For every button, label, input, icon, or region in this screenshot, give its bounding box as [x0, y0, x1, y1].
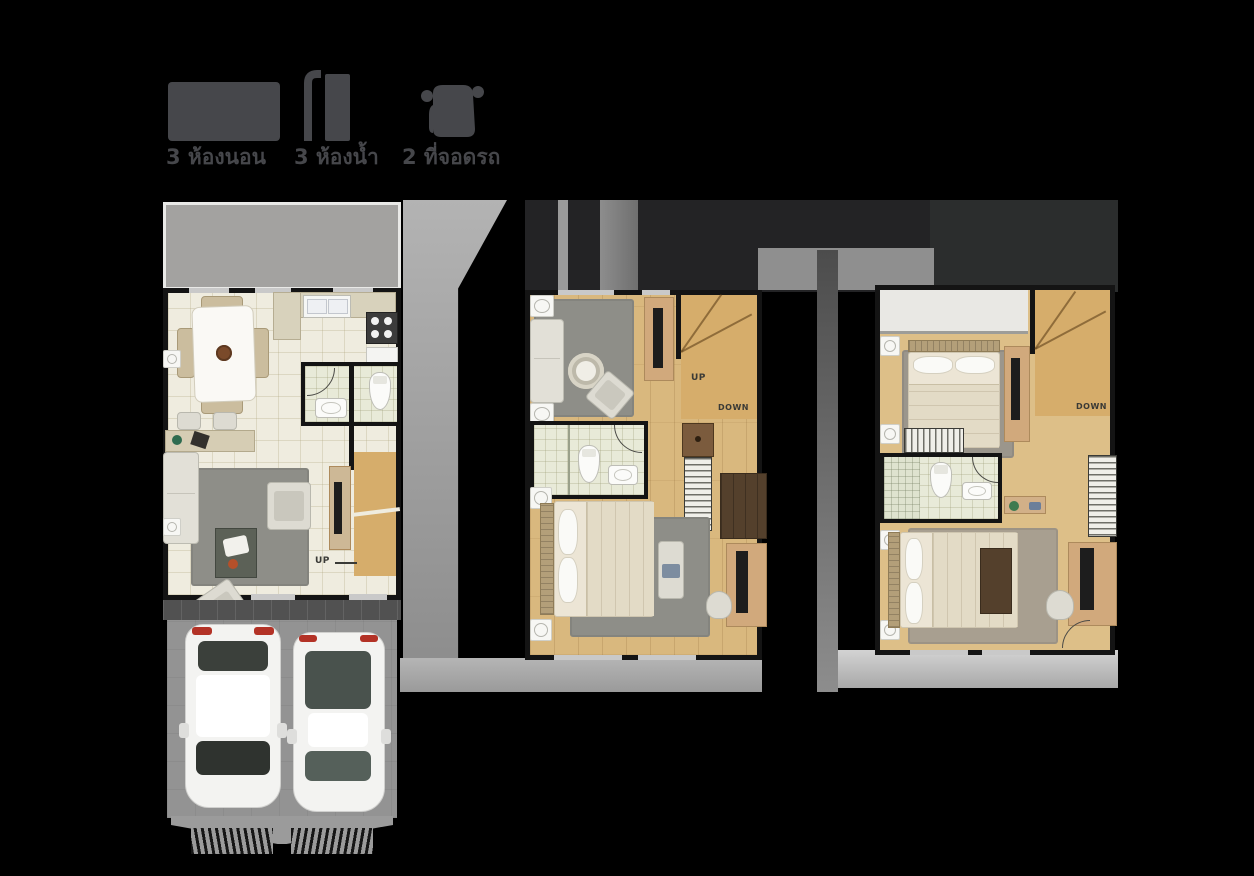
stairs-up-label: UP: [691, 373, 706, 383]
gray-band-mid-top: [758, 248, 934, 290]
shower-area: [884, 457, 920, 519]
pillow: [905, 538, 923, 580]
pillow: [558, 557, 578, 603]
third-floor-plan: DOWN: [875, 285, 1115, 655]
staircase-3-landing: [1035, 350, 1075, 416]
staircase-2-upper: [681, 295, 757, 353]
nightstand-lamp: [530, 619, 552, 641]
kerb-hatching: [291, 828, 373, 854]
side-mirror: [381, 729, 391, 744]
car-2: [293, 632, 385, 812]
pillow: [913, 356, 953, 374]
hall-cabinet: [682, 423, 714, 457]
windshield: [305, 751, 371, 781]
desk-chair: [706, 591, 732, 619]
window: [910, 650, 968, 655]
bathroom-sink: [315, 398, 347, 418]
gray-strip-middle: [817, 250, 838, 692]
side-table-lamp: [163, 350, 181, 368]
tv: [1011, 358, 1020, 420]
tv: [653, 308, 663, 368]
glass-roof: [305, 651, 371, 709]
first-floor-plan: UP: [163, 200, 401, 860]
closet-rack: [904, 428, 964, 453]
pillow: [905, 582, 923, 624]
balcony: [880, 290, 1028, 334]
side-mirror: [179, 723, 189, 738]
side-mirror: [287, 729, 297, 744]
floorplan-poster: 3 ห้องนอน 3 ห้องน้ำ 2 ที่จอดรถ: [0, 0, 1254, 876]
taillight: [299, 635, 317, 642]
desk-monitor: [1080, 548, 1094, 610]
kitchen-counter-arm: [273, 292, 301, 340]
ground-strip-under-plan3: [838, 650, 1118, 688]
car-roof: [196, 675, 270, 737]
pillow: [955, 356, 995, 374]
side-table-lamp: [530, 295, 554, 317]
stairs-up-label: UP: [315, 556, 330, 566]
hall-console: [1004, 496, 1046, 514]
window: [642, 290, 670, 295]
bed-headboard: [888, 532, 900, 628]
table-plant: [216, 345, 233, 362]
bathroom-sink: [962, 482, 992, 500]
bathroom-sink: [608, 465, 638, 485]
windshield: [196, 741, 270, 775]
bedroom-bench: [658, 541, 684, 599]
car-roof: [308, 713, 368, 747]
window: [982, 650, 1030, 655]
tv: [334, 482, 342, 534]
duvet: [586, 502, 654, 616]
legend-parking-label: 2 ที่จอดรถ: [402, 141, 500, 174]
console-desk: [165, 430, 255, 452]
second-floor-plan: UP DOWN: [525, 290, 762, 660]
stairs-down-label: DOWN: [1076, 402, 1107, 411]
desk-chair: [1046, 590, 1074, 620]
legend: 3 ห้องนอน 3 ห้องน้ำ 2 ที่จอดรถ: [0, 0, 560, 180]
bed-bench: [980, 548, 1012, 614]
side-mirror: [277, 723, 287, 738]
legend-bathrooms-label: 3 ห้องน้ำ: [294, 141, 379, 174]
car-1: [185, 624, 281, 808]
coffee-table: [215, 528, 257, 578]
taillight: [360, 635, 378, 642]
closet-rack: [1088, 455, 1117, 537]
wardrobe: [720, 473, 767, 539]
terrace: [163, 202, 401, 290]
stairs-down-label: DOWN: [718, 403, 749, 412]
taillight: [192, 627, 212, 635]
stove: [366, 312, 398, 344]
porch: [163, 600, 401, 620]
window: [558, 290, 614, 295]
nightstand-lamp: [880, 336, 900, 356]
bed-headboard: [540, 503, 554, 615]
desk-chair: [213, 412, 237, 430]
kerb-hatching: [191, 828, 273, 854]
car-icon: [419, 83, 487, 141]
bed-icon: [168, 82, 280, 141]
dark-backdrop-right: [930, 200, 1118, 292]
staircase-3-upper: [1035, 290, 1110, 350]
armchair: [267, 482, 311, 530]
ground-strip-under-plan2: [400, 658, 762, 692]
rear-window: [198, 641, 268, 671]
side-table-lamp: [163, 518, 181, 536]
stairs-up-arrow: [335, 562, 357, 564]
staircase-1: [354, 452, 396, 576]
backdrop-slit: [600, 200, 638, 292]
bedroom-door-arc: [1062, 620, 1090, 648]
window: [189, 288, 229, 293]
shower-screen: [568, 425, 570, 495]
kitchen-sink: [303, 295, 351, 318]
legend-bedrooms-label: 3 ห้องนอน: [166, 141, 266, 174]
bed-headboard: [908, 340, 1000, 352]
shower-icon: [298, 67, 354, 141]
sofa: [530, 319, 564, 403]
desk-chair: [177, 412, 201, 430]
pillow: [558, 509, 578, 555]
nightstand-lamp: [880, 424, 900, 444]
staircase-2-landing: [681, 353, 723, 419]
window: [554, 655, 622, 660]
taillight: [254, 627, 274, 635]
perspective-wedge: [403, 200, 507, 692]
window: [638, 655, 696, 660]
backdrop-slit: [558, 200, 568, 292]
desk-monitor: [736, 551, 748, 613]
dining-table: [191, 305, 256, 403]
